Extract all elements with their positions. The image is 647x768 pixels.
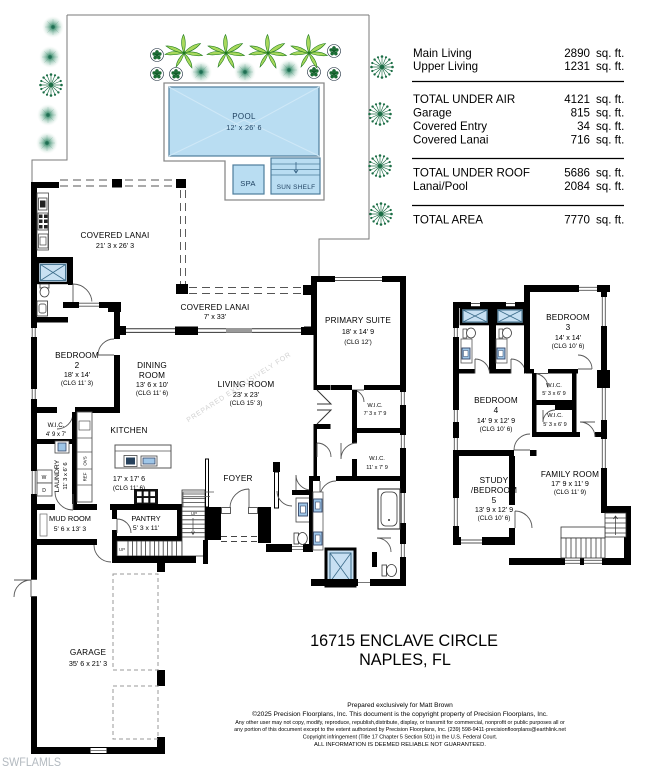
svg-text:COVERED LANAI: COVERED LANAI [80, 231, 149, 240]
svg-text:13' 9 x 12' 9: 13' 9 x 12' 9 [475, 505, 513, 514]
svg-text:35' 6 x 21' 3: 35' 6 x 21' 3 [69, 659, 107, 668]
svg-text:21' 3 x 26' 3: 21' 3 x 26' 3 [96, 241, 134, 250]
svg-text:(CLG 10' 6): (CLG 10' 6) [478, 515, 511, 522]
svg-text:16715 ENCLAVE CIRCLE: 16715 ENCLAVE CIRCLE [310, 632, 498, 650]
svg-text:1231: 1231 [564, 60, 590, 73]
svg-text:2: 2 [75, 361, 80, 370]
svg-text:sq. ft.: sq. ft. [596, 47, 624, 60]
svg-text:sq. ft.: sq. ft. [596, 167, 624, 180]
svg-text:KITCHEN: KITCHEN [110, 426, 147, 435]
svg-text:17' x 17' 6: 17' x 17' 6 [113, 474, 145, 483]
svg-text:Garage: Garage [413, 107, 452, 120]
svg-text:7' x 33': 7' x 33' [204, 312, 227, 321]
svg-text:34: 34 [577, 120, 590, 133]
svg-text:sq. ft.: sq. ft. [596, 134, 624, 147]
svg-text:sq. ft.: sq. ft. [596, 107, 624, 120]
svg-text:W: W [42, 475, 47, 481]
svg-text:W.I.C.: W.I.C. [367, 403, 383, 409]
svg-text:4' 9 x 7': 4' 9 x 7' [46, 432, 66, 438]
svg-text:Any other user may not copy, m: Any other user may not copy, modify, rep… [235, 720, 565, 726]
svg-text:14' x 14': 14' x 14' [555, 333, 582, 342]
svg-text:sq. ft.: sq. ft. [596, 93, 624, 106]
svg-text:TOTAL AREA: TOTAL AREA [413, 214, 483, 227]
svg-text:815: 815 [571, 107, 590, 120]
svg-text:18' x 14' 9: 18' x 14' 9 [342, 327, 374, 336]
svg-text:13' 6 x 10': 13' 6 x 10' [136, 380, 169, 389]
svg-text:/BEDROOM: /BEDROOM [471, 486, 517, 495]
svg-text:FAMILY ROOM: FAMILY ROOM [541, 470, 599, 479]
svg-text:2084: 2084 [564, 180, 590, 193]
svg-text:(CLG 11' 9): (CLG 11' 9) [554, 489, 586, 496]
svg-text:OVS: OVS [83, 456, 88, 465]
svg-text:11' 3 x 6' 6: 11' 3 x 6' 6 [63, 462, 69, 489]
svg-text:11' x 7' 9: 11' x 7' 9 [366, 465, 388, 471]
svg-text:5' 3 x 6' 9: 5' 3 x 6' 9 [543, 422, 567, 428]
svg-text:(CLG 11' 6): (CLG 11' 6) [113, 485, 145, 492]
svg-text:SWFLAMLS: SWFLAMLS [2, 755, 61, 768]
svg-text:5' 3 x 6' 9: 5' 3 x 6' 9 [542, 391, 566, 397]
svg-text:W.I.C.: W.I.C. [547, 413, 563, 419]
svg-text:14' 9 x 12' 9: 14' 9 x 12' 9 [477, 416, 515, 425]
svg-text:BEDROOM: BEDROOM [546, 313, 590, 322]
svg-text:5686: 5686 [564, 167, 590, 180]
svg-text:BEDROOM: BEDROOM [474, 396, 518, 405]
svg-text:4: 4 [494, 406, 499, 415]
svg-text:5' 6 x 13' 3: 5' 6 x 13' 3 [54, 526, 87, 533]
svg-text:2890: 2890 [564, 47, 590, 60]
svg-text:sq. ft.: sq. ft. [596, 60, 624, 73]
svg-text:UP: UP [191, 511, 197, 516]
svg-text:DINING: DINING [137, 361, 167, 370]
svg-text:12' x 26' 6: 12' x 26' 6 [226, 123, 262, 132]
svg-text:ALL INFORMATION IS DEEMED RELI: ALL INFORMATION IS DEEMED RELIABLE NOT G… [314, 742, 486, 748]
svg-text:Main Living: Main Living [413, 47, 472, 60]
svg-text:Covered Entry: Covered Entry [413, 120, 487, 133]
svg-text:©2025 Precision Floorplans, In: ©2025 Precision Floorplans, Inc. This do… [252, 710, 548, 718]
svg-text:SPA: SPA [240, 179, 256, 188]
svg-text:NAPLES, FL: NAPLES, FL [359, 651, 451, 669]
svg-text:TOTAL UNDER AIR: TOTAL UNDER AIR [413, 93, 515, 106]
svg-text:PRIMARY SUITE: PRIMARY SUITE [325, 316, 391, 325]
svg-text:TOTAL UNDER ROOF: TOTAL UNDER ROOF [413, 167, 530, 180]
svg-text:W.I.C.: W.I.C. [369, 456, 385, 462]
svg-text:Copyright infringement (Title: Copyright infringement (Title 17 Chapter… [303, 735, 498, 741]
svg-text:MUD ROOM: MUD ROOM [49, 514, 91, 523]
svg-text:any portion of this document e: any portion of this document except to t… [234, 727, 566, 733]
svg-text:BEDROOM: BEDROOM [55, 351, 99, 360]
svg-text:4121: 4121 [564, 93, 590, 106]
svg-text:STUDY: STUDY [480, 476, 509, 485]
svg-text:sq. ft.: sq. ft. [596, 120, 624, 133]
svg-text:(CLG 10' 6): (CLG 10' 6) [480, 426, 513, 433]
svg-text:FOYER: FOYER [223, 474, 252, 483]
svg-text:Prepared exclusively for Matt: Prepared exclusively for Matt Brown [347, 702, 453, 709]
svg-text:SUN SHELF: SUN SHELF [277, 184, 316, 191]
svg-text:Upper Living: Upper Living [413, 60, 478, 73]
svg-text:UP: UP [119, 547, 125, 552]
svg-text:5: 5 [492, 496, 497, 505]
svg-text:716: 716 [571, 134, 590, 147]
svg-text:GARAGE: GARAGE [70, 648, 107, 657]
svg-text:(CLG 15' 3): (CLG 15' 3) [230, 400, 263, 407]
svg-text:3: 3 [566, 323, 571, 332]
svg-text:D: D [42, 488, 46, 494]
svg-text:5' 3 x 11': 5' 3 x 11' [133, 525, 159, 532]
svg-text:Covered Lanai: Covered Lanai [413, 134, 488, 147]
svg-text:(CLG 12'): (CLG 12') [344, 339, 372, 346]
svg-text:(CLG 10' 6): (CLG 10' 6) [552, 343, 585, 350]
svg-text:18' x 14': 18' x 14' [64, 370, 91, 379]
svg-text:(CLG 11' 3): (CLG 11' 3) [61, 380, 93, 387]
svg-text:POOL: POOL [232, 112, 256, 121]
svg-text:7770: 7770 [564, 214, 590, 227]
svg-text:7' 3 x 7' 9: 7' 3 x 7' 9 [364, 411, 387, 417]
svg-text:sq. ft.: sq. ft. [596, 214, 624, 227]
svg-text:REF: REF [83, 472, 88, 481]
svg-text:(CLG 11' 6): (CLG 11' 6) [136, 390, 168, 397]
svg-text:ROOM: ROOM [139, 371, 165, 380]
svg-text:W.I.C.: W.I.C. [546, 383, 562, 389]
svg-text:sq. ft.: sq. ft. [596, 180, 624, 193]
svg-text:W.I.C.: W.I.C. [48, 422, 65, 429]
svg-text:LAUNDRY: LAUNDRY [54, 459, 61, 492]
svg-text:Lanai/Pool: Lanai/Pool [413, 180, 468, 193]
svg-text:PANTRY: PANTRY [131, 514, 160, 523]
svg-text:17' 9 x 11' 9: 17' 9 x 11' 9 [551, 479, 589, 488]
svg-text:COVERED LANAI: COVERED LANAI [180, 303, 249, 312]
